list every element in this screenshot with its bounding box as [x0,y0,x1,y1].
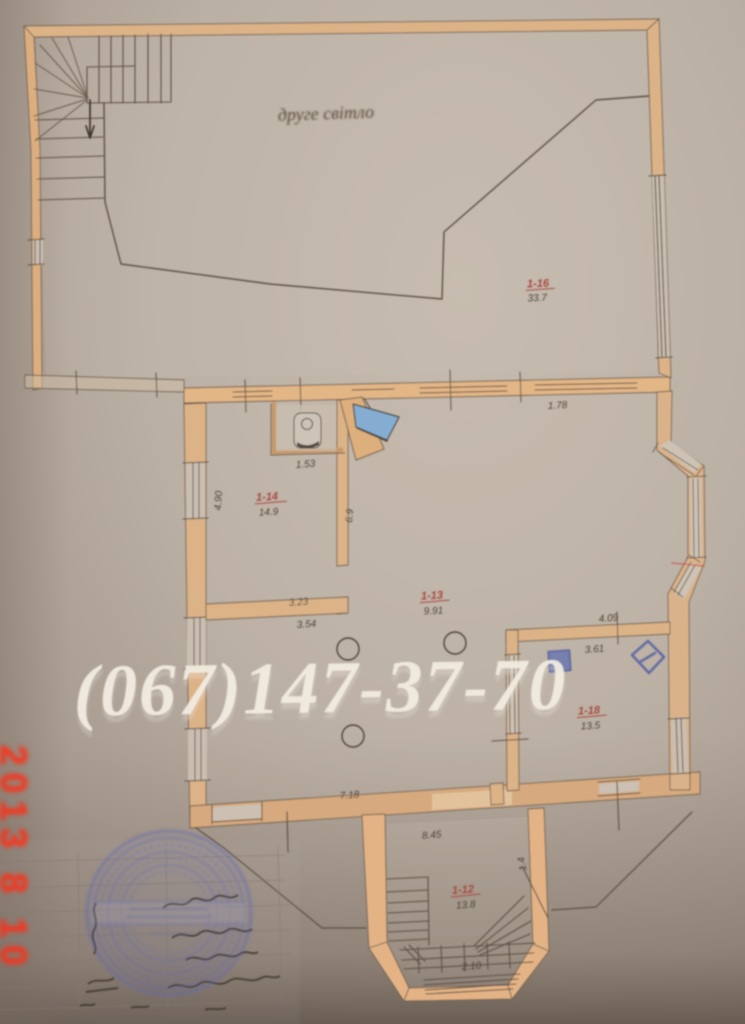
svg-text:13.5: 13.5 [580,720,600,732]
svg-text:3.61: 3.61 [584,644,604,656]
svg-text:4.09: 4.09 [598,613,619,625]
svg-text:3.23: 3.23 [288,597,309,609]
svg-text:1.53: 1.53 [295,459,316,471]
svg-text:7.18: 7.18 [339,790,360,802]
svg-text:6.9: 6.9 [344,508,356,523]
svg-text:1.78: 1.78 [548,400,568,412]
svg-text:33.7: 33.7 [527,293,547,305]
svg-text:друге світло: друге світло [277,102,374,125]
svg-text:2013 8 10: 2013 8 10 [0,745,34,973]
svg-text:2.10: 2.10 [460,961,482,973]
svg-text:14.9: 14.9 [259,507,279,519]
svg-text:4.90: 4.90 [213,490,225,510]
svg-text:8.45: 8.45 [422,829,443,842]
svg-text:3.54: 3.54 [296,619,317,631]
svg-text:13.8: 13.8 [456,899,477,911]
svg-text:9.91: 9.91 [423,605,443,617]
svg-text:(067)147-37-70: (067)147-37-70 [73,644,568,733]
svg-text:1-16: 1-16 [527,278,550,291]
